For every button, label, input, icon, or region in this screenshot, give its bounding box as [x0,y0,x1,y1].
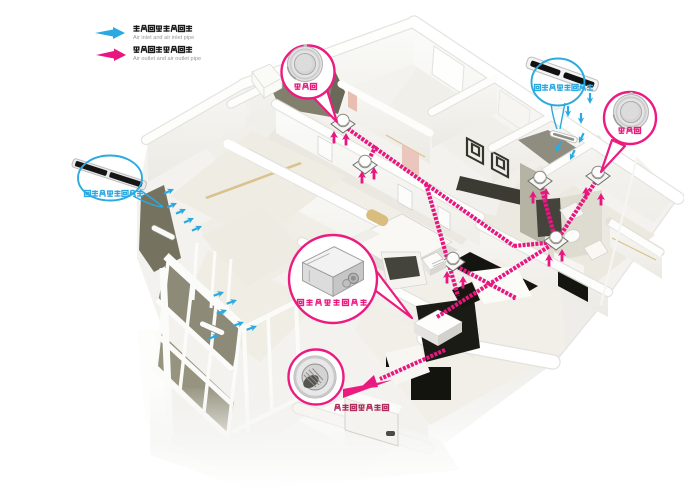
svg-text:Air outlet and air outlet pipe: Air outlet and air outlet pipe [133,56,201,62]
svg-text:Air inlet and air inlet pipe: Air inlet and air inlet pipe [133,35,194,41]
